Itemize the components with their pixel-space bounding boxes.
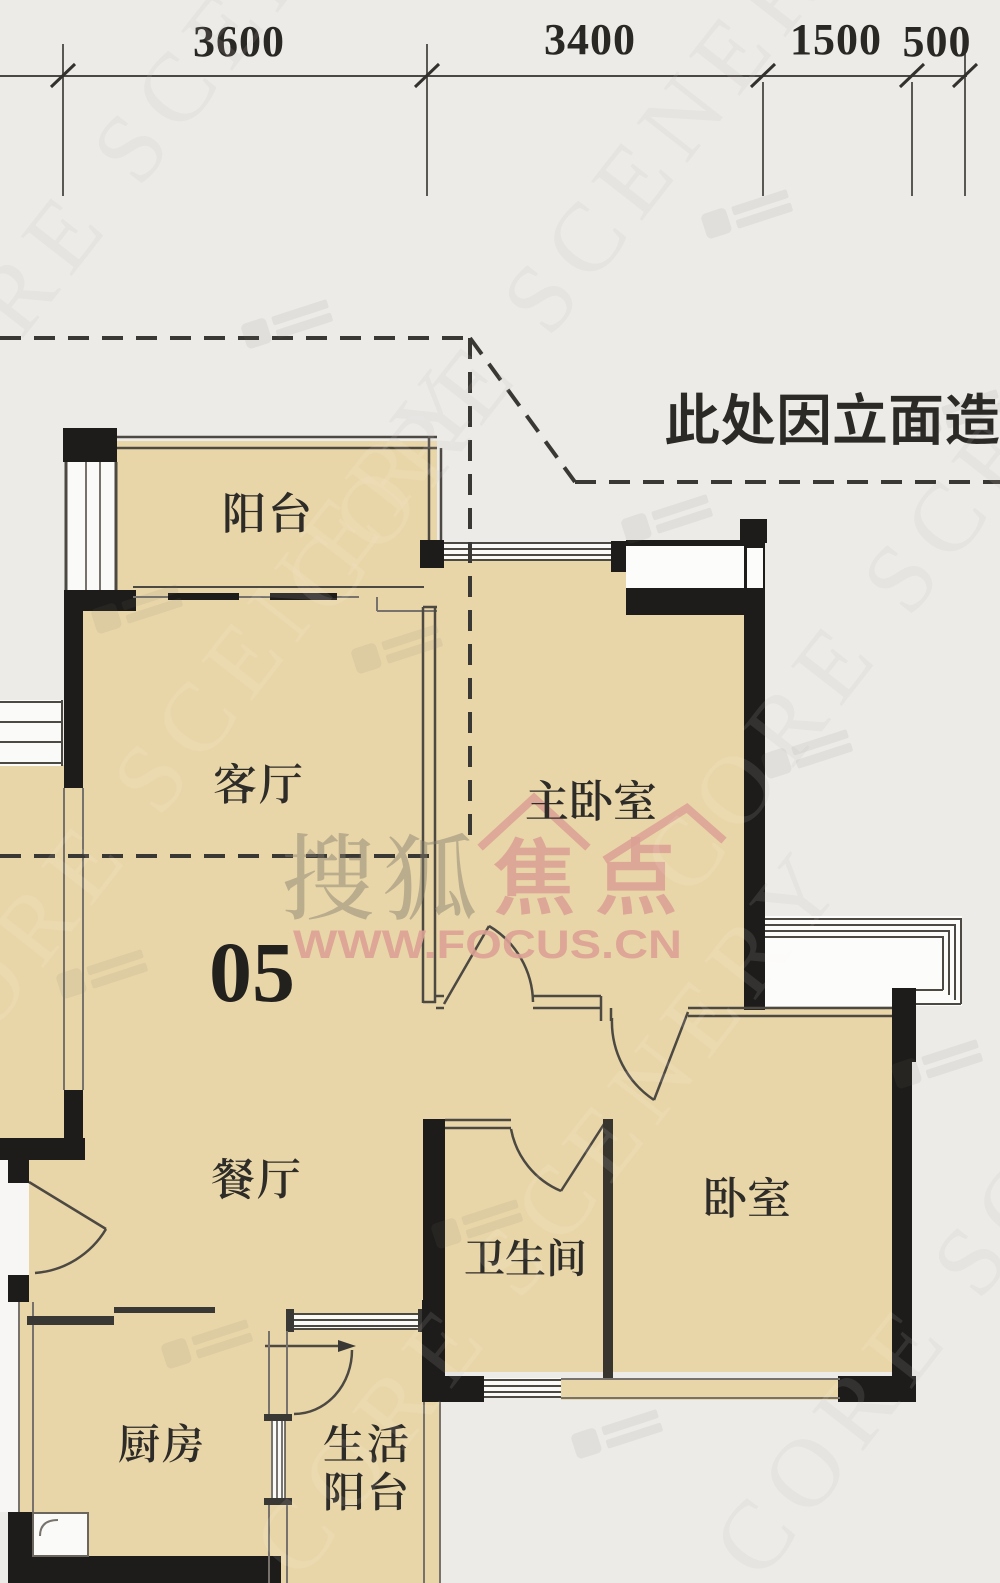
svg-text:WWW.FOCUS.CN: WWW.FOCUS.CN: [293, 923, 682, 967]
svg-text:500: 500: [903, 17, 972, 66]
svg-text:CORE SCENERY: CORE SCENERY: [622, 142, 1000, 914]
svg-text:3400: 3400: [544, 15, 636, 64]
svg-text:05: 05: [209, 924, 295, 1020]
